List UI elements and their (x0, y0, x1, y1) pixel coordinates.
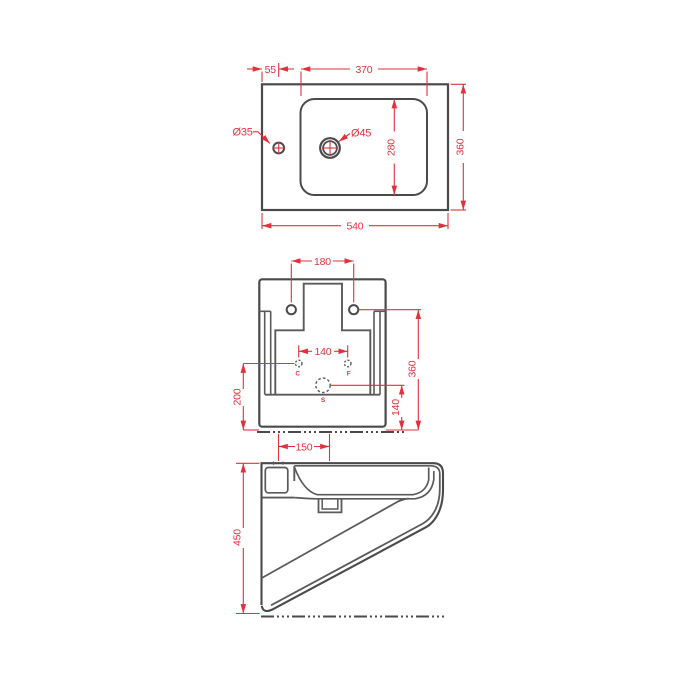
dim-supply-spacing: 140 (299, 345, 348, 358)
dia-label-35: Ø35 (233, 127, 253, 139)
dim-label-200: 200 (232, 388, 244, 405)
mounting-hole-right (349, 305, 358, 314)
mounting-hole-left (287, 305, 296, 314)
rear-recess-profile (275, 284, 370, 395)
dim-basin-depth: 280 (385, 99, 397, 195)
label-c: C (295, 371, 300, 378)
dim-label-280: 280 (385, 139, 397, 156)
dim-label-360-rear: 360 (407, 360, 419, 377)
dim-label-370: 370 (356, 64, 373, 76)
dim-label-450: 450 (232, 529, 244, 546)
top-view: 55 370 540 360 (233, 63, 467, 233)
dim-label-360-top: 360 (454, 138, 466, 155)
dim-overall-width: 540 (262, 213, 448, 233)
dim-mount-height: 360 (407, 310, 419, 430)
dim-label-140v: 140 (390, 399, 402, 416)
dim-drain-height: 140 (390, 385, 402, 430)
drain-stub (319, 499, 342, 513)
dim-label-55: 55 (265, 64, 277, 76)
dim-overall-height: 450 (232, 463, 260, 613)
faucet-hole (273, 142, 285, 154)
dim-label-150: 150 (296, 441, 313, 453)
dim-basin-width: 370 (301, 64, 427, 96)
dim-overall-depth: 360 (451, 84, 467, 210)
side-cavity-line (262, 499, 409, 578)
supply-hole-c: C (295, 360, 302, 377)
rear-side-wall-right (374, 311, 386, 394)
rear-view: 180 140 C F S (232, 256, 421, 432)
side-tap-deck (262, 462, 295, 498)
technical-drawing-page: 55 370 540 360 (0, 0, 700, 700)
side-view: 450 (232, 462, 447, 617)
label-f: F (347, 371, 351, 378)
basin-floor-top (294, 467, 428, 495)
drain-outlet-s: S (316, 378, 330, 404)
side-under-rim-line (294, 466, 440, 474)
callout-drain-hole: Ø45 (339, 128, 371, 142)
dim-label-180: 180 (314, 256, 331, 268)
dim-faucet-offset: 55 (247, 63, 294, 82)
rim-outline (262, 84, 448, 210)
dia-label-45: Ø45 (351, 128, 371, 140)
basin-technical-drawing: 55 370 540 360 (0, 0, 700, 700)
dim-label-540: 540 (347, 221, 364, 233)
dim-faucet-to-drain: 150 (279, 434, 330, 461)
drain-hole (320, 138, 340, 158)
supply-hole-f: F (344, 360, 351, 377)
label-s: S (321, 397, 326, 404)
dim-label-140h: 140 (315, 346, 332, 358)
callout-faucet-hole: Ø35 (233, 127, 271, 144)
dim-supply-height: 200 (232, 364, 244, 431)
rear-side-wall-left (259, 311, 270, 394)
side-outer-profile (262, 463, 444, 611)
